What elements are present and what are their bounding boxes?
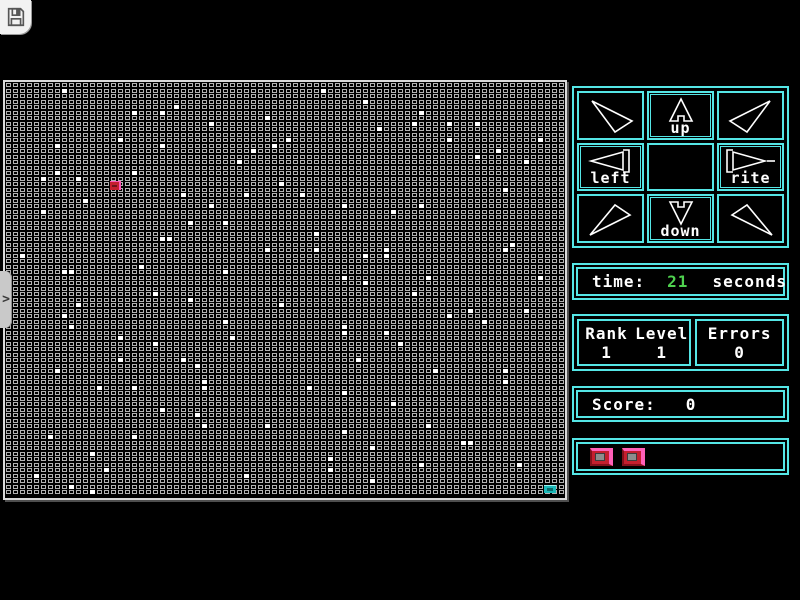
dpad-left-label: left [590,172,630,185]
life-block-icon [622,448,645,466]
lives-panel [572,438,789,475]
dpad-rite-button[interactable]: rite [717,143,784,192]
time-unit: seconds [712,272,786,291]
rank-level-box: Rank Level 1 1 [577,319,691,366]
errors-value: 0 [697,343,782,362]
dpad-center-cell [647,143,714,192]
dpad-up-label: up [670,122,690,135]
errors-box: Errors 0 [695,319,784,366]
level-value: 1 [634,343,689,362]
score-label: Score: [592,395,656,414]
chevron-right-icon: > [2,292,10,307]
arrow-up-left-icon [582,93,640,137]
dpad-up-button[interactable]: up [647,91,714,140]
side-panel-toggle[interactable]: > [0,271,12,328]
dpad-up-left-button[interactable] [577,91,644,140]
floppy-disk-icon [5,6,27,28]
time-value: 21 [667,272,688,291]
errors-label: Errors [697,324,782,343]
time-panel: time: 21 seconds [572,263,789,300]
life-block-icon [590,448,613,466]
dpad-down-label: down [660,225,700,238]
dpad: up left rite [572,86,789,248]
dpad-rite-label: rite [730,172,770,185]
save-button[interactable] [0,0,31,34]
rank-label: Rank [579,324,634,343]
arrow-down-right-icon [722,197,780,241]
rank-value: 1 [579,343,634,362]
dpad-down-left-button[interactable] [577,194,644,243]
game-screen: > up left [0,0,800,600]
dpad-left-button[interactable]: left [577,143,644,192]
score-panel: Score: 0 [572,386,789,422]
maze-playfield [3,80,567,500]
arrow-up-right-icon [722,93,780,137]
arrow-down-left-icon [582,197,640,241]
score-value: 0 [686,395,697,414]
time-label: time: [592,272,645,291]
maze-grid[interactable] [6,83,564,496]
dpad-down-button[interactable]: down [647,194,714,243]
dpad-down-right-button[interactable] [717,194,784,243]
level-label: Level [634,324,689,343]
rank-errors-panel: Rank Level 1 1 Errors 0 [572,314,789,371]
dpad-up-right-button[interactable] [717,91,784,140]
